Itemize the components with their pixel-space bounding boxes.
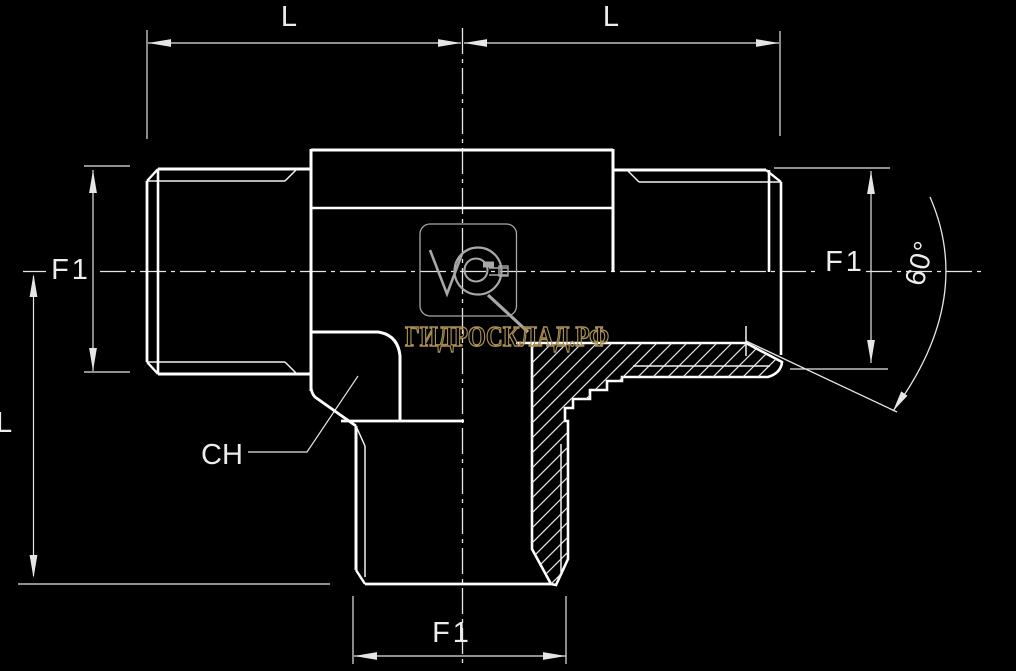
svg-text:CH: CH bbox=[201, 439, 243, 471]
svg-text:L: L bbox=[603, 1, 619, 33]
svg-text:F1: F1 bbox=[825, 246, 865, 278]
svg-text:60°: 60° bbox=[899, 237, 941, 289]
svg-text:ГИДРОСКЛАД.РФ: ГИДРОСКЛАД.РФ bbox=[405, 321, 609, 353]
svg-text:L: L bbox=[281, 1, 297, 33]
svg-text:F1: F1 bbox=[432, 617, 472, 649]
svg-text:L: L bbox=[0, 407, 12, 439]
svg-text:F1: F1 bbox=[51, 254, 91, 286]
